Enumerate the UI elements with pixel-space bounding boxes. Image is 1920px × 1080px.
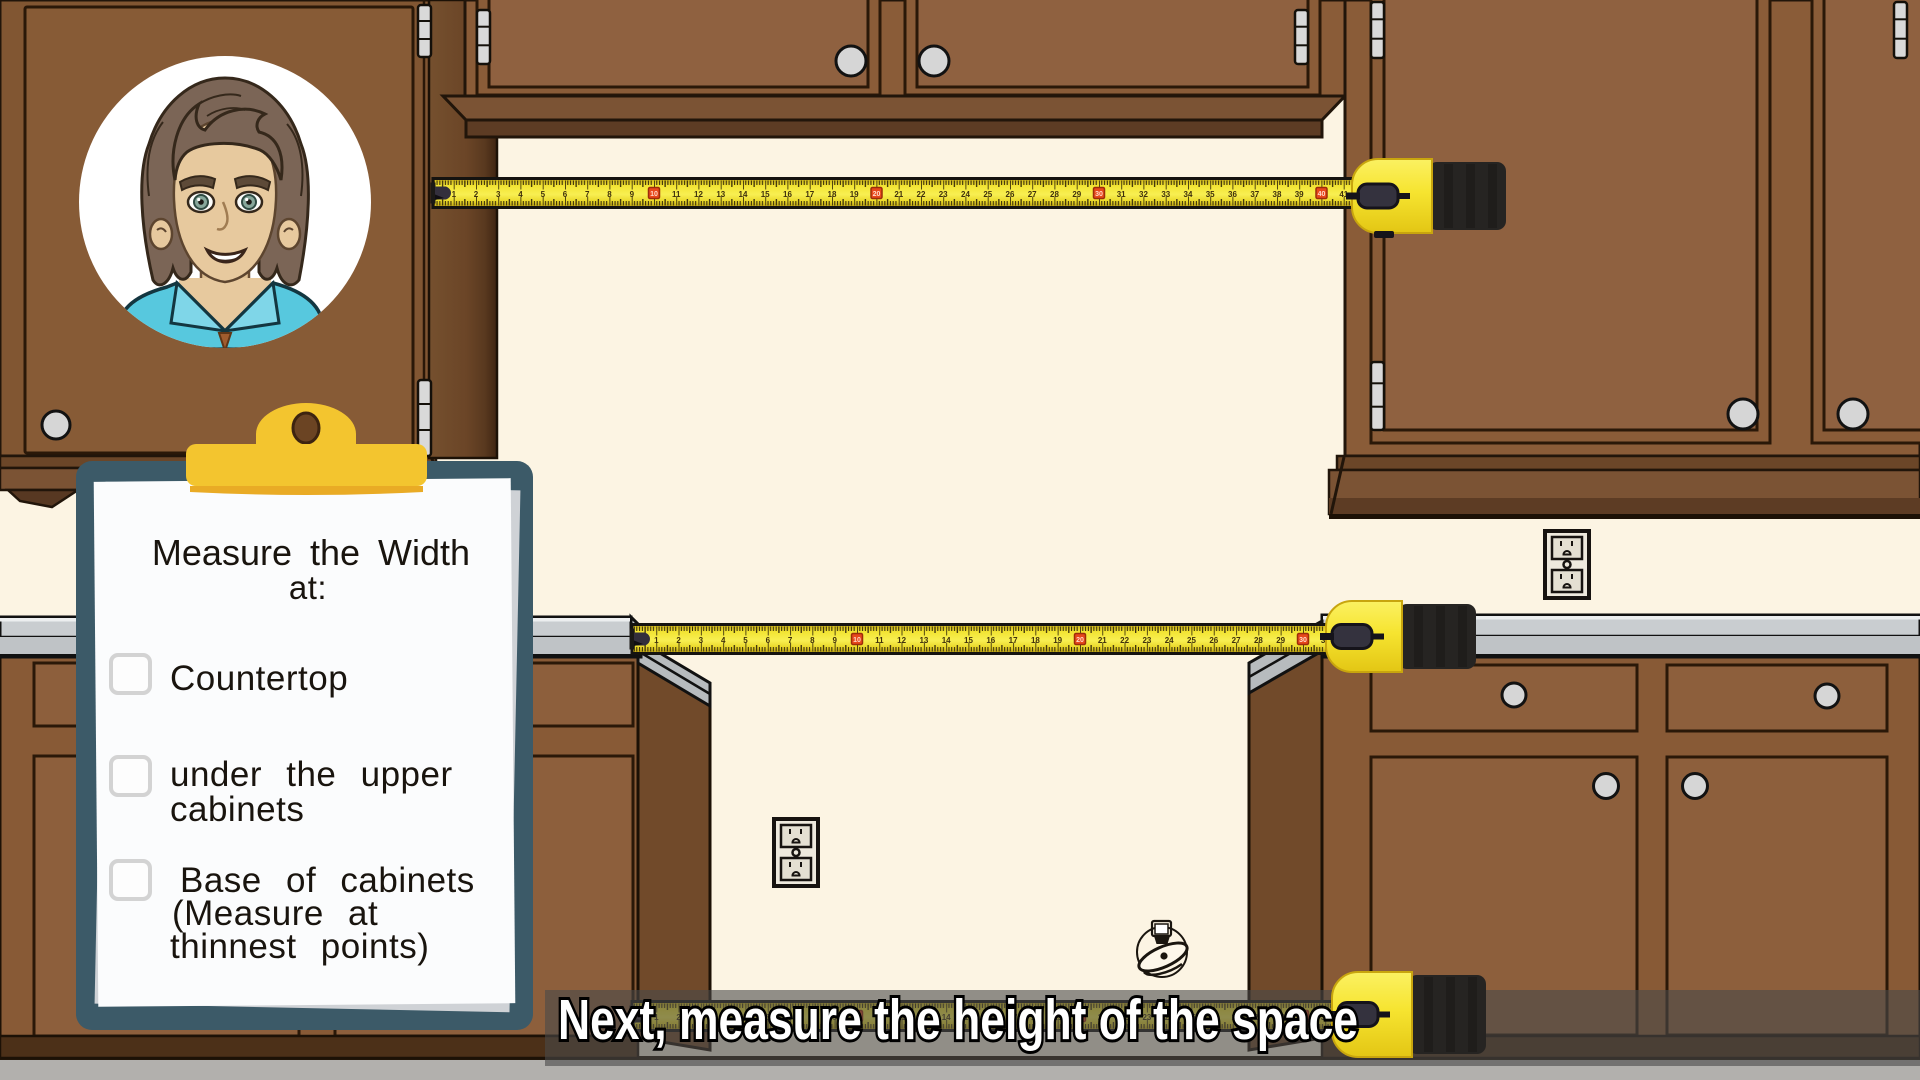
svg-text:36: 36 [1228,190,1237,199]
svg-text:Countertop: Countertop [170,659,348,698]
svg-text:thinnest points): thinnest points) [170,927,429,966]
svg-text:10: 10 [853,637,861,644]
svg-text:25: 25 [1187,636,1196,645]
svg-text:27: 27 [1232,636,1241,645]
svg-text:4: 4 [518,190,523,199]
svg-text:14: 14 [739,190,748,199]
svg-text:Measure the Width: Measure the Width [152,532,470,573]
svg-text:21: 21 [894,190,903,199]
svg-text:21: 21 [1098,636,1107,645]
svg-text:12: 12 [897,636,906,645]
svg-text:6: 6 [766,636,771,645]
svg-text:8: 8 [607,190,612,199]
svg-text:22: 22 [917,190,926,199]
svg-text:cabinets: cabinets [170,790,304,829]
svg-text:37: 37 [1250,190,1259,199]
svg-text:11: 11 [672,190,681,199]
svg-text:12: 12 [694,190,703,199]
svg-text:24: 24 [961,190,970,199]
svg-text:38: 38 [1273,190,1282,199]
svg-text:7: 7 [585,190,590,199]
svg-text:19: 19 [1053,636,1062,645]
svg-text:17: 17 [805,190,814,199]
svg-text:27: 27 [1028,190,1037,199]
svg-text:34: 34 [1184,190,1193,199]
svg-text:7: 7 [788,636,793,645]
svg-text:5: 5 [743,636,748,645]
svg-text:35: 35 [1206,190,1215,199]
svg-text:28: 28 [1254,636,1263,645]
svg-text:30: 30 [1095,191,1103,198]
svg-text:24: 24 [1165,636,1174,645]
svg-text:20: 20 [1076,637,1084,644]
svg-text:23: 23 [939,190,948,199]
svg-text:under the upper: under the upper [170,755,453,794]
svg-text:15: 15 [964,636,973,645]
svg-text:1: 1 [452,190,457,199]
svg-text:19: 19 [850,190,859,199]
svg-text:33: 33 [1161,190,1170,199]
svg-text:13: 13 [919,636,928,645]
svg-text:9: 9 [832,636,837,645]
svg-text:30: 30 [1299,637,1307,644]
svg-text:11: 11 [875,636,884,645]
svg-text:14: 14 [942,636,951,645]
svg-text:5: 5 [541,190,546,199]
svg-text:2: 2 [474,190,479,199]
svg-text:40: 40 [1318,191,1326,198]
svg-text:2: 2 [676,636,681,645]
svg-text:18: 18 [1031,636,1040,645]
svg-text:31: 31 [1117,190,1126,199]
svg-text:Next, measure the height of th: Next, measure the height of the space [558,988,1358,1052]
svg-text:26: 26 [1209,636,1218,645]
svg-text:22: 22 [1120,636,1129,645]
svg-text:8: 8 [810,636,815,645]
svg-text:16: 16 [986,636,995,645]
svg-text:4: 4 [721,636,726,645]
svg-text:26: 26 [1006,190,1015,199]
svg-text:15: 15 [761,190,770,199]
svg-text:1: 1 [654,636,659,645]
svg-text:20: 20 [873,191,881,198]
svg-text:29: 29 [1072,190,1081,199]
svg-text:3: 3 [699,636,704,645]
svg-text:32: 32 [1139,190,1148,199]
svg-text:9: 9 [630,190,635,199]
svg-text:6: 6 [563,190,568,199]
svg-text:18: 18 [828,190,837,199]
svg-text:39: 39 [1295,190,1304,199]
svg-text:17: 17 [1009,636,1018,645]
svg-text:13: 13 [716,190,725,199]
svg-text:at:: at: [289,569,327,606]
svg-text:25: 25 [983,190,992,199]
svg-text:10: 10 [650,191,658,198]
svg-text:28: 28 [1050,190,1059,199]
svg-text:29: 29 [1276,636,1285,645]
svg-text:16: 16 [783,190,792,199]
svg-text:23: 23 [1142,636,1151,645]
svg-text:3: 3 [496,190,501,199]
